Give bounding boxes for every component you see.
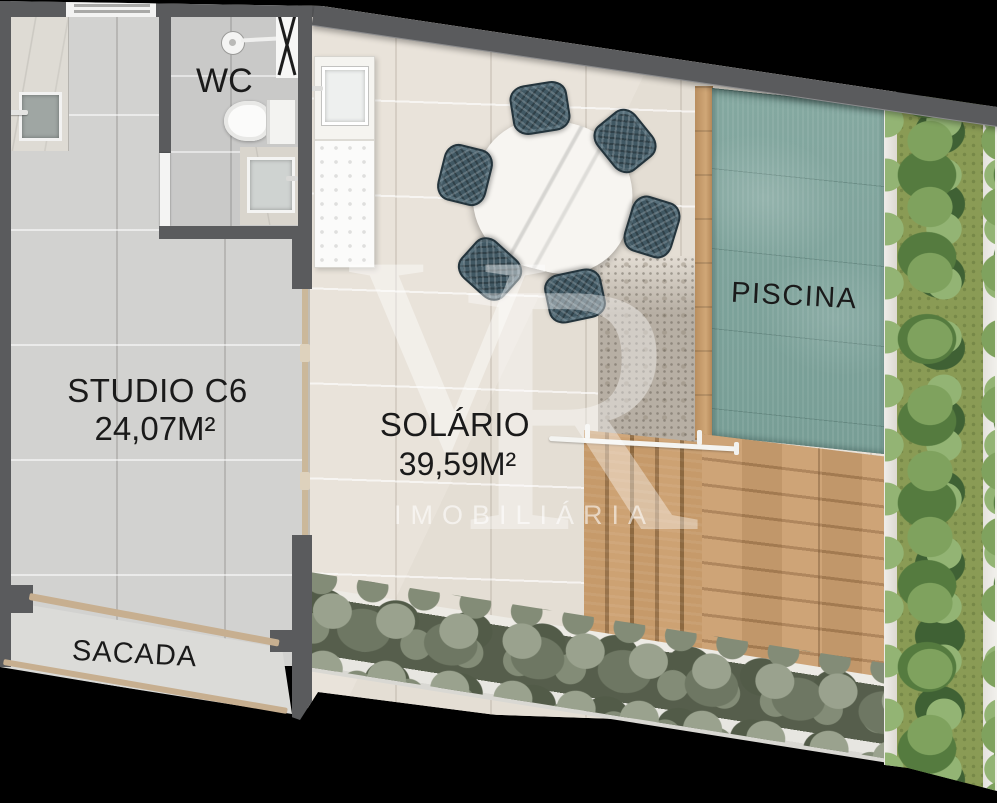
- divider-wall-upper: [292, 239, 312, 289]
- sacada-label: SACADA: [71, 635, 198, 675]
- toilet-icon: [224, 101, 270, 141]
- floorplan-clip-region: WC STUDIO C6 24,07M² SOLÁRIO 39,59M² PIS…: [0, 0, 997, 803]
- rail-post: [734, 442, 739, 455]
- wc-wall-left: [159, 5, 171, 153]
- solario-sink: [322, 67, 368, 125]
- shower-door-x-icon: [276, 12, 298, 78]
- solario-label: SOLÁRIO: [355, 406, 555, 444]
- shower-enclosure-icon: [276, 12, 298, 78]
- floorplan-image: WC STUDIO C6 24,07M² SOLÁRIO 39,59M² PIS…: [0, 0, 997, 803]
- studio-area-label: 24,07M²: [60, 410, 250, 448]
- wc-wall-bottom: [159, 226, 312, 239]
- door-frame-joint: [300, 344, 310, 362]
- planter-bushes: [885, 108, 995, 792]
- wall-vent-icon: [66, 0, 156, 17]
- wc-wall-right: [298, 5, 312, 239]
- kitchen-sink: [19, 92, 62, 141]
- wc-label: WC: [196, 62, 253, 101]
- toilet-tank: [266, 99, 296, 145]
- sliding-glass-door: [302, 289, 310, 537]
- studio-label: STUDIO C6: [60, 372, 255, 410]
- wall-left: [0, 1, 11, 667]
- solario-area-label: 39,59M²: [360, 446, 555, 483]
- bathroom-sink: [247, 157, 295, 213]
- bathroom-faucet-icon: [286, 176, 298, 181]
- shower-head-icon: [221, 31, 245, 55]
- pool-water: [712, 88, 886, 454]
- side-garden-planter: [884, 96, 997, 796]
- door-frame-joint: [300, 472, 310, 490]
- wc-door: [160, 153, 170, 226]
- watermark-subtitle: IMOBILIÁRIA: [394, 500, 655, 531]
- divider-wall-lower: [292, 535, 312, 721]
- piscina-label: PISCINA: [730, 277, 858, 317]
- dining-chair: [507, 79, 572, 137]
